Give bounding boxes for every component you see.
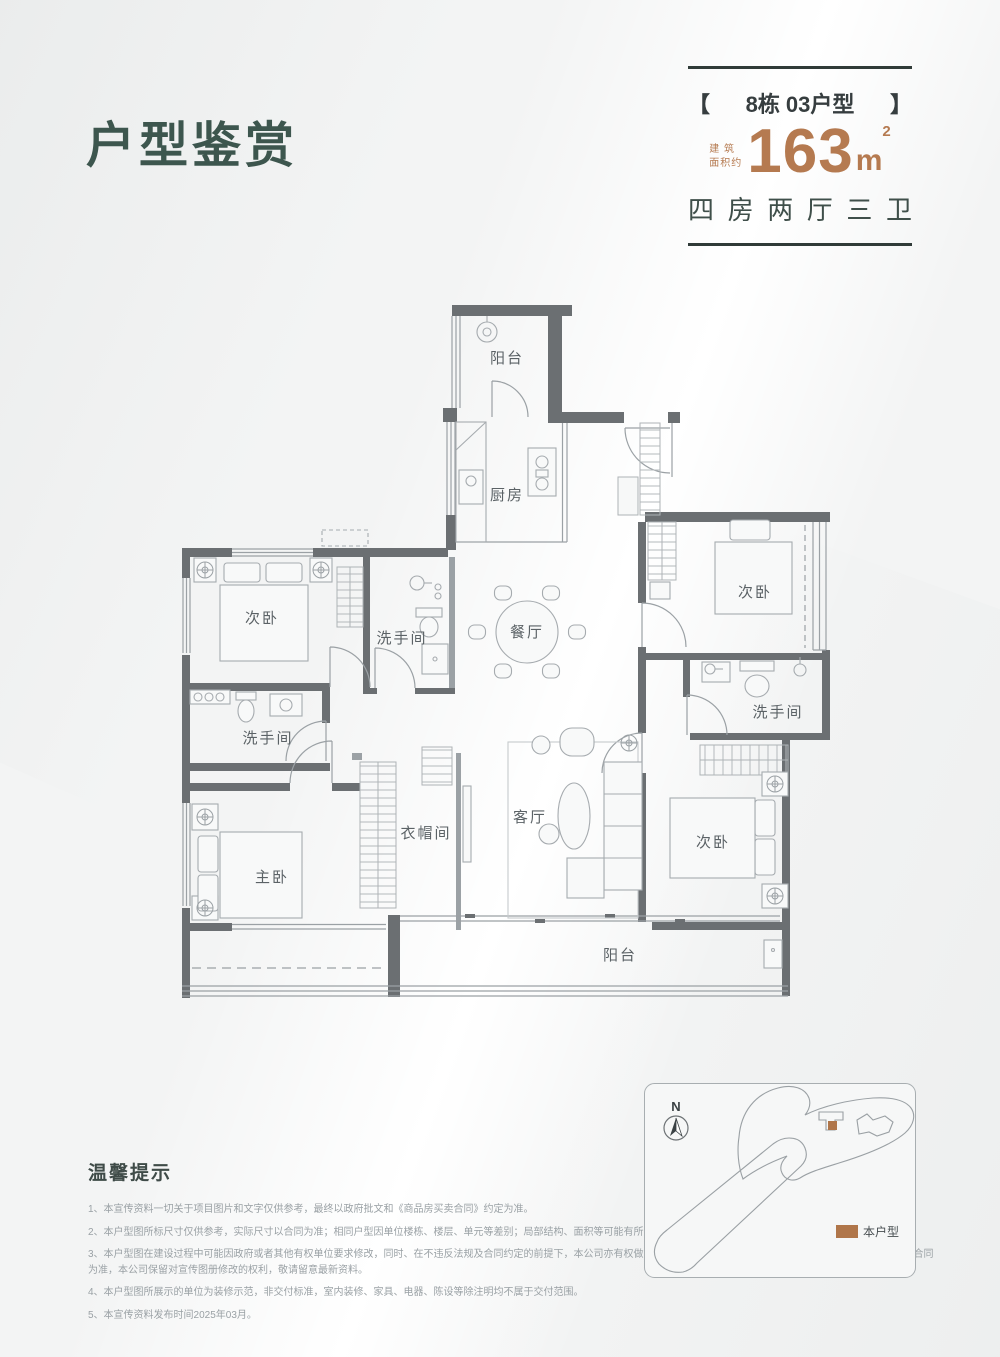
area-superscript: 2	[882, 123, 890, 140]
room-label-balcony-top: 阳台	[490, 350, 524, 367]
room-label-dining: 餐厅	[510, 624, 544, 641]
room-label-bedroom-left: 次卧	[245, 610, 279, 627]
room-label-bath-center: 洗手间	[376, 630, 427, 647]
rooms-desc: 四房两厅三卫	[688, 190, 912, 227]
room-label-cloakroom: 衣帽间	[400, 825, 451, 842]
room-label-balcony-bottom: 阳台	[603, 947, 637, 964]
room-label-master: 主卧	[255, 869, 289, 886]
siteplan-svg: N 本户型	[643, 1082, 917, 1279]
legend-label: 本户型	[863, 1224, 899, 1239]
room-label-bedroom-top-right: 次卧	[738, 584, 772, 601]
siteplan: N 本户型	[643, 1082, 917, 1284]
siteplan-legend: 本户型	[836, 1224, 899, 1239]
unit-info-block: 【 8栋 03户型 】 建 筑 面积约 163 m2 四房两厅三卫	[688, 66, 912, 246]
page-title: 户型鉴赏	[86, 106, 298, 177]
tips-item: 4、本户型图所展示的单位为装修示范，非交付标准，室内装修、家具、电器、陈设等除注…	[88, 1285, 940, 1301]
legend-swatch	[836, 1225, 858, 1238]
north-label: N	[671, 1099, 680, 1114]
area-row: 建 筑 面积约 163 m2	[688, 123, 912, 180]
poster-page: 户型鉴赏 【 8栋 03户型 】 建 筑 面积约 163 m2 四房两厅三卫	[0, 0, 1000, 1357]
area-prefix: 建 筑 面积约	[709, 143, 743, 170]
tips-item: 5、本宣传资料发布时间2025年03月。	[88, 1308, 940, 1324]
unit-name-row: 【 8栋 03户型 】	[688, 87, 912, 119]
unit-name: 8栋 03户型	[746, 87, 855, 119]
highlight-building-marker	[828, 1121, 837, 1130]
room-label-kitchen: 厨房	[490, 487, 524, 504]
floorplan-svg: 阳台 厨房 次卧 洗手间 餐厅 次卧 洗手间 洗手间 主卧 衣帽间 客厅 次卧 …	[170, 290, 840, 1010]
room-label-bath-right: 洗手间	[752, 704, 803, 721]
area-value: 163	[747, 123, 853, 180]
top-rule	[688, 66, 912, 69]
room-label-bath-left: 洗手间	[242, 730, 293, 747]
siteplan-border	[645, 1084, 916, 1278]
bracket-right: 】	[890, 87, 912, 119]
area-unit: m2	[856, 146, 891, 176]
room-label-bedroom-bottom-right: 次卧	[696, 834, 730, 851]
bottom-rule	[688, 243, 912, 246]
room-label-living: 客厅	[513, 809, 547, 826]
floorplan: 阳台 厨房 次卧 洗手间 餐厅 次卧 洗手间 洗手间 主卧 衣帽间 客厅 次卧 …	[170, 290, 840, 1015]
bracket-left: 【	[688, 87, 710, 119]
